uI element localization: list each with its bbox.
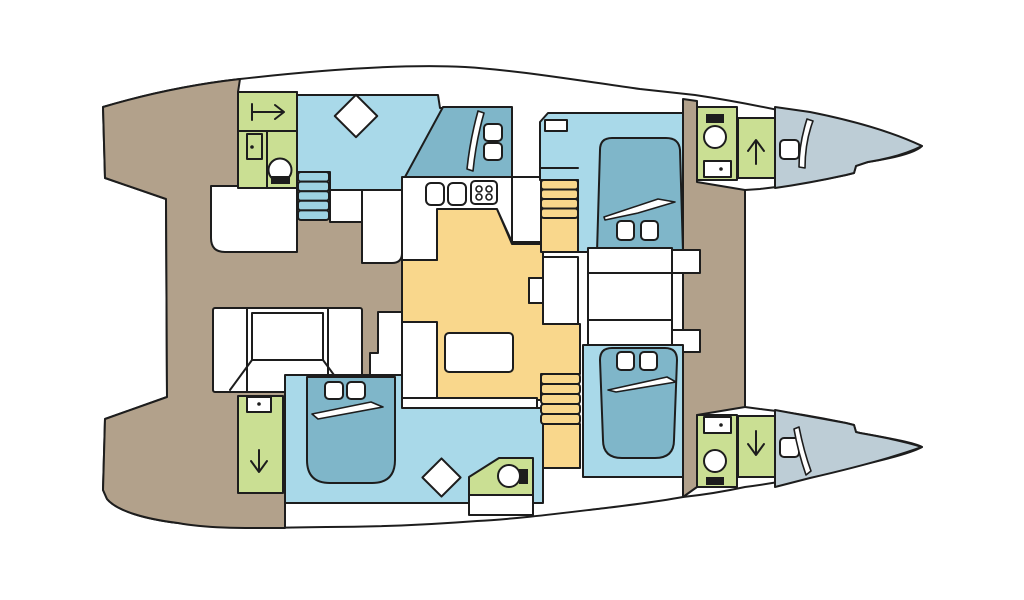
toilet-tank: [706, 114, 724, 123]
toilet-icon: [498, 465, 520, 487]
pillow: [484, 143, 502, 160]
pillow: [484, 124, 502, 141]
stbd-fwd-berth: [600, 348, 677, 458]
floorplan-stage: [0, 0, 1024, 600]
stbd-bow-shower: [738, 416, 775, 477]
wardrobe: [545, 120, 567, 131]
galley-bulkhead: [512, 177, 543, 242]
pillow: [347, 382, 365, 399]
cockpit-walkway: [330, 190, 362, 222]
port-aft-head: [238, 92, 297, 188]
drain-dot: [257, 402, 261, 406]
galley-sink-icon: [448, 183, 466, 205]
washbasin-icon: [704, 417, 731, 433]
nav-seat: [529, 278, 543, 303]
bow-hatch-icon: [780, 140, 799, 159]
stbd-bow-head: [697, 415, 737, 487]
port-bow-head: [697, 107, 737, 180]
drain-dot: [719, 423, 723, 427]
saloon-entry: [362, 190, 402, 263]
pillow: [617, 352, 634, 370]
port-hull-fwd-stairs: [541, 180, 578, 252]
door-icon: [247, 134, 262, 159]
pillow: [617, 221, 634, 240]
toilet-tank: [519, 469, 528, 484]
toilet-seat: [706, 477, 724, 485]
stbd-aft-shower: [238, 396, 283, 493]
hull-step: [469, 495, 533, 515]
catamaran-floorplan: [0, 0, 1024, 600]
port-fwd-cabin: [540, 113, 683, 252]
stbd-fwd-cabin: [583, 345, 683, 477]
toilet-seat: [271, 176, 290, 184]
port-forepeak: [775, 107, 922, 188]
toilet-icon: [704, 450, 726, 472]
stbd-hull-stairs: [541, 374, 580, 424]
pillow: [641, 221, 658, 240]
port-bow-shower: [738, 118, 775, 178]
saloon-table: [445, 333, 513, 372]
nav-table: [543, 257, 578, 324]
locker-step: [672, 250, 700, 273]
toilet-icon: [704, 126, 726, 148]
door-handle-dot: [250, 145, 254, 149]
pillow: [640, 352, 657, 370]
drain-dot: [719, 167, 723, 171]
port-hull-stairs: [298, 172, 329, 220]
stove-icon: [471, 181, 497, 204]
cockpit-walkway: [211, 186, 297, 252]
galley-sink-icon: [426, 183, 444, 205]
stbd-forepeak: [775, 410, 922, 487]
pillow: [325, 382, 343, 399]
washbasin-icon: [704, 161, 731, 177]
